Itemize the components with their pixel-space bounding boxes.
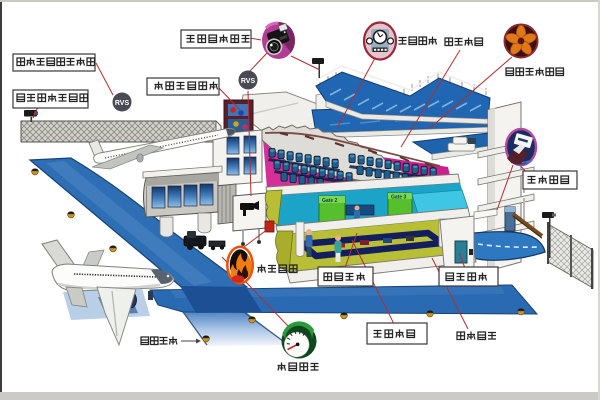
svg-text:Gate 2: Gate 2: [322, 198, 338, 204]
svg-text:RVS: RVS: [241, 78, 256, 85]
svg-text:Gate 3: Gate 3: [391, 195, 407, 201]
svg-text:RVS: RVS: [115, 100, 130, 107]
